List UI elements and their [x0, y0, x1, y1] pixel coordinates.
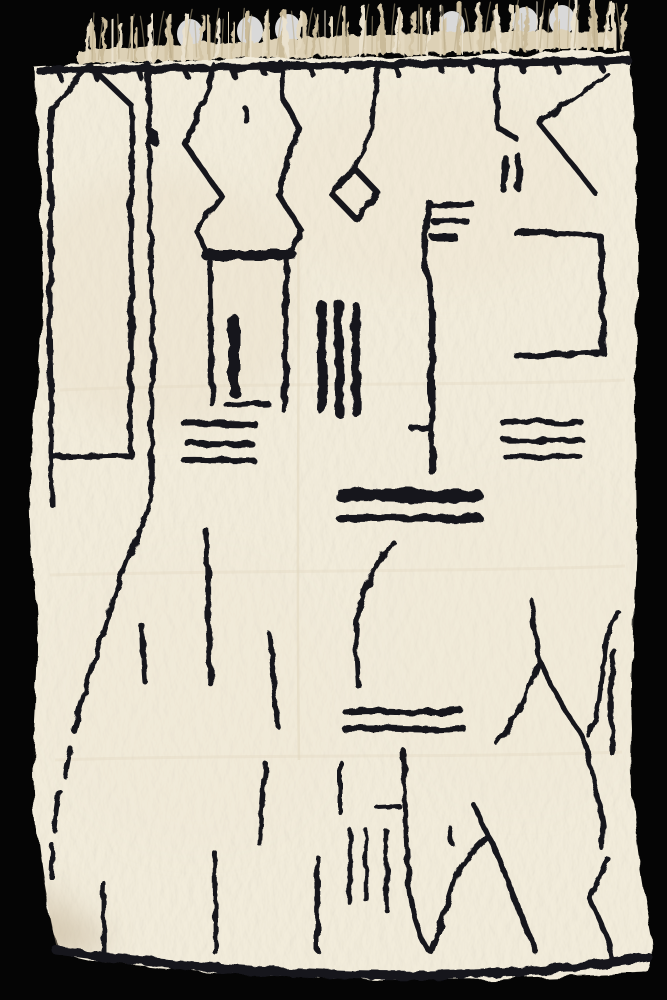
rug-body — [0, 0, 667, 1000]
motif-bars-trio-2 — [339, 304, 340, 414]
crease-vertical — [298, 220, 299, 760]
motif-left-dashes-2 — [188, 444, 252, 445]
motif-right-dashes-3 — [506, 457, 580, 458]
motif-bars-trio-3 — [356, 307, 357, 412]
motif-center-line-end — [432, 450, 433, 471]
motif-column-right — [284, 261, 287, 410]
motif-bottom-tick-2 — [215, 853, 216, 953]
motif-lambda-stub — [449, 827, 452, 843]
motif-right-dashes-2 — [504, 440, 581, 441]
motif-pause-bar-left — [504, 158, 505, 190]
motif-e-arm-top — [432, 204, 472, 206]
motif-column-left — [210, 261, 213, 404]
motif-thick-bar-2 — [340, 518, 479, 519]
motif-mark-dot — [245, 108, 247, 122]
fringe-tassel — [135, 28, 137, 60]
motif-house-left-tail — [51, 460, 52, 505]
motif-bars-trio-1 — [322, 305, 323, 410]
fringe-tassel — [612, 5, 616, 48]
fringe-tassel — [559, 17, 560, 50]
motif-left-dashes-3 — [184, 460, 253, 461]
fringe-wisp — [522, 14, 523, 48]
motif-wavy-dash-2 — [345, 728, 463, 729]
motif-comb-tick — [378, 807, 400, 808]
motif-short-line-a — [142, 625, 145, 682]
motif-thick-bar — [341, 495, 477, 497]
shading-spot — [40, 550, 360, 850]
rug-photo: Cream white shaggy Beni Ourain style woo… — [0, 0, 667, 1000]
motif-right-dashes-1 — [502, 421, 582, 423]
fringe-tassel — [478, 16, 481, 52]
motif-center-line-tick — [412, 428, 429, 429]
motif-column-dash — [228, 404, 268, 406]
motif-left-dashes-1 — [184, 422, 254, 423]
motif-wavy-dash-1 — [346, 711, 461, 713]
fringe-tassel — [440, 7, 441, 53]
motif-wavy-line-dot — [153, 132, 155, 143]
fringe-tassel — [228, 15, 229, 58]
fringe-tassel — [112, 20, 113, 61]
motif-bottom-tick-4 — [317, 858, 318, 950]
motif-pause-bar-right — [518, 157, 519, 188]
fringe-tassel — [421, 10, 422, 53]
fringe-tassel — [250, 27, 251, 57]
rug-photo-canvas — [0, 0, 667, 1000]
fringe-tassel — [208, 18, 211, 59]
